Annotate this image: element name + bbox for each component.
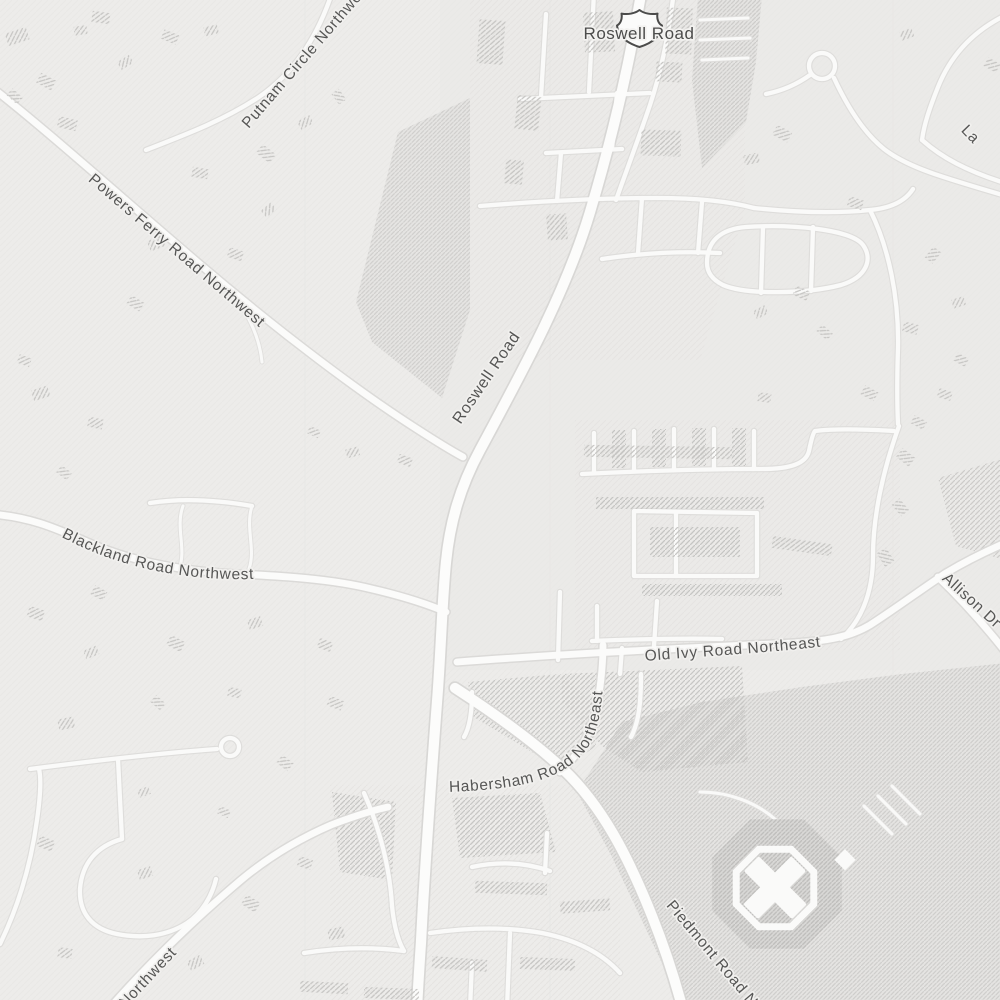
map-canvas[interactable]: Powers Ferry Road Northwest Putnam Circl… <box>0 0 1000 1000</box>
map-svg: Powers Ferry Road Northwest Putnam Circl… <box>0 0 1000 1000</box>
label-shield-roswell-road: Roswell Road <box>584 24 695 43</box>
